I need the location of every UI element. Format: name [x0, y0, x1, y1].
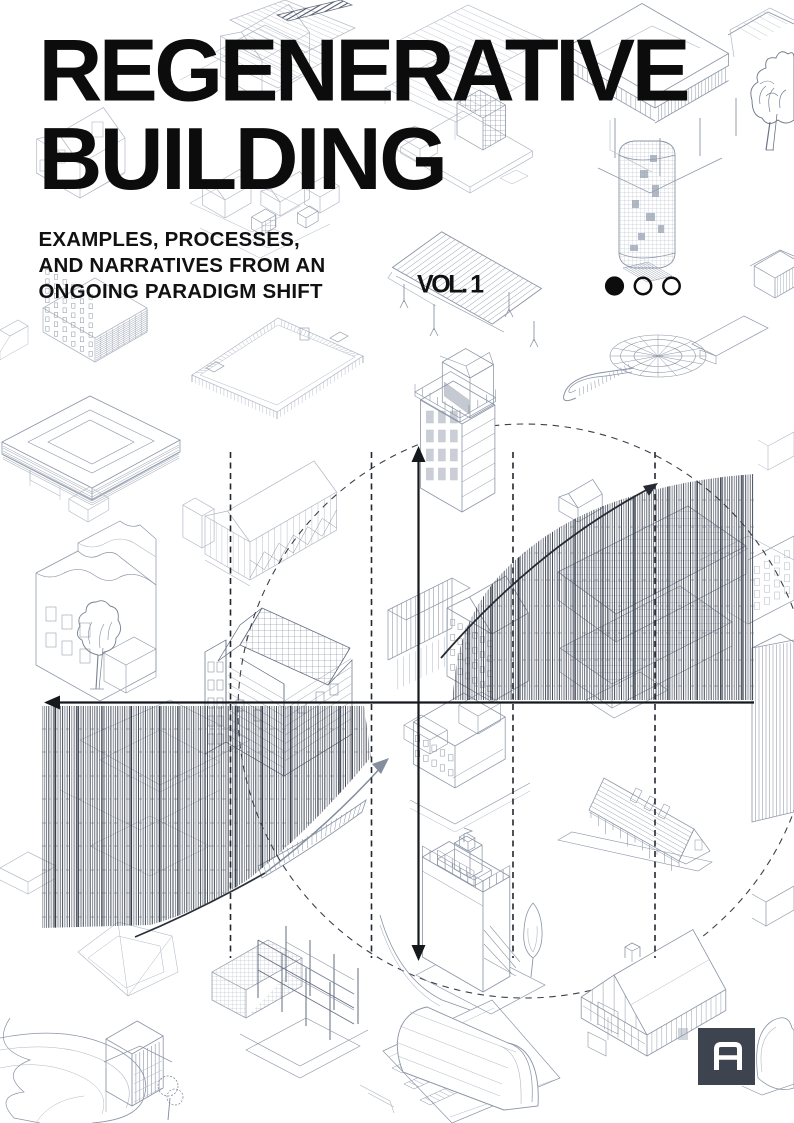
svg-text:BUILDING: BUILDING [39, 109, 446, 208]
svg-text:VOL. 1: VOL. 1 [417, 270, 484, 298]
svg-text:AND NARRATIVES FROM AN: AND NARRATIVES FROM AN [39, 254, 326, 277]
svg-text:REGENERATIVE: REGENERATIVE [39, 20, 688, 119]
svg-text:EXAMPLES, PROCESSES,: EXAMPLES, PROCESSES, [39, 228, 300, 251]
svg-text:ONGOING PARADIGM SHIFT: ONGOING PARADIGM SHIFT [39, 280, 323, 303]
